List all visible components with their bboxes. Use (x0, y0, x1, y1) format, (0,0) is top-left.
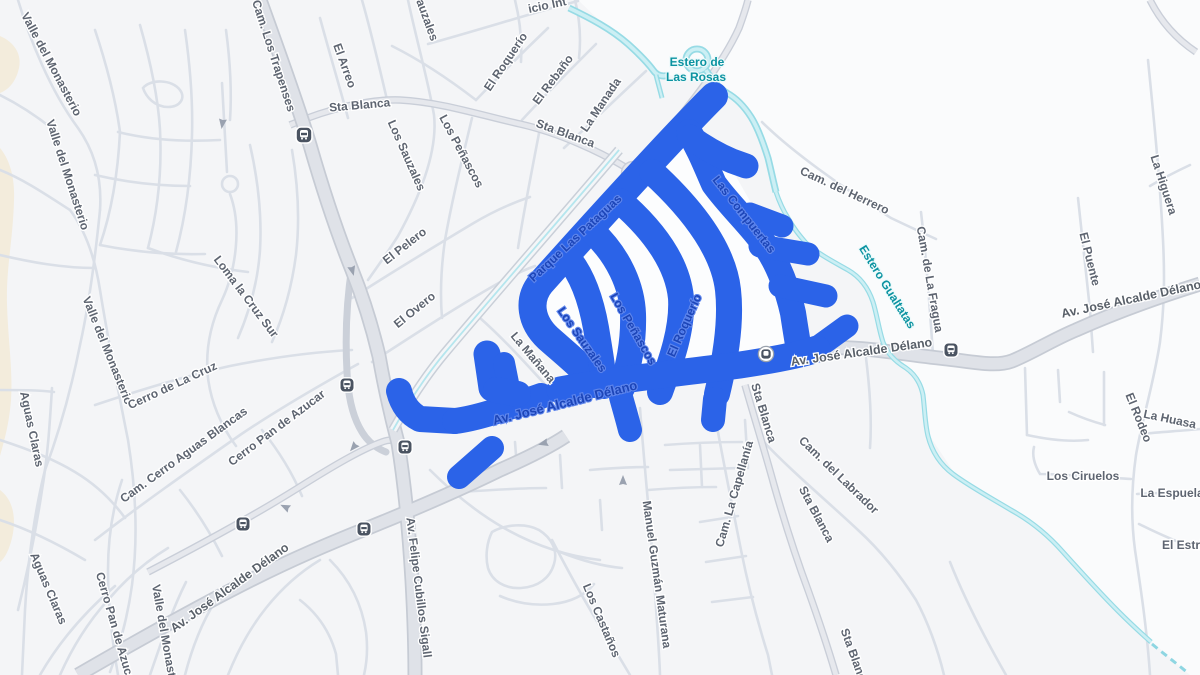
svg-text:La Espuela: La Espuela (1140, 486, 1200, 500)
svg-text:Estero de: Estero de (670, 55, 725, 69)
svg-text:El Estribo: El Estribo (1162, 538, 1200, 552)
svg-text:Los Ciruelos: Los Ciruelos (1047, 469, 1120, 483)
svg-text:Las Rosas: Las Rosas (666, 70, 726, 84)
